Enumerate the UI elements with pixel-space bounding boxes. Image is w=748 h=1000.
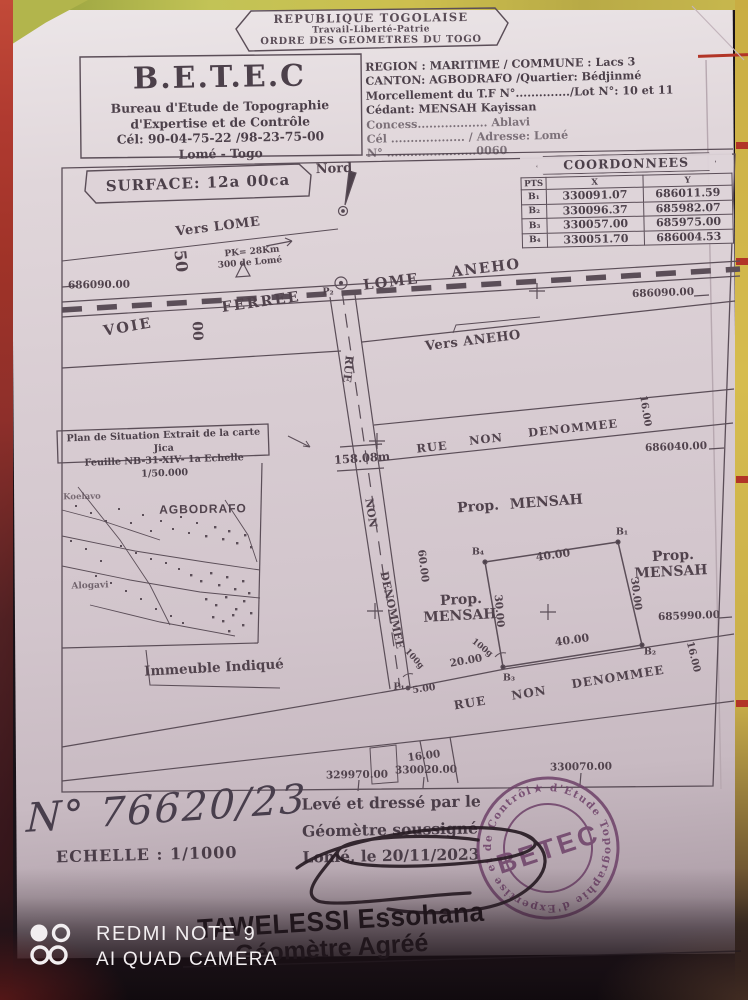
watermark-line1: REDMI NOTE 9	[96, 923, 278, 946]
signature-stroke	[297, 828, 535, 868]
signature	[0, 0, 748, 1000]
photo-frame: REPUBLIQUE TOGOLAISE Travail-Liberté-Pat…	[0, 0, 748, 1000]
camera-watermark: REDMI NOTE 9 AI QUAD CAMERA	[28, 923, 278, 971]
redmi-logo-icon	[28, 923, 82, 969]
signature-stroke	[311, 851, 470, 903]
watermark-line2: AI QUAD CAMERA	[96, 949, 278, 971]
